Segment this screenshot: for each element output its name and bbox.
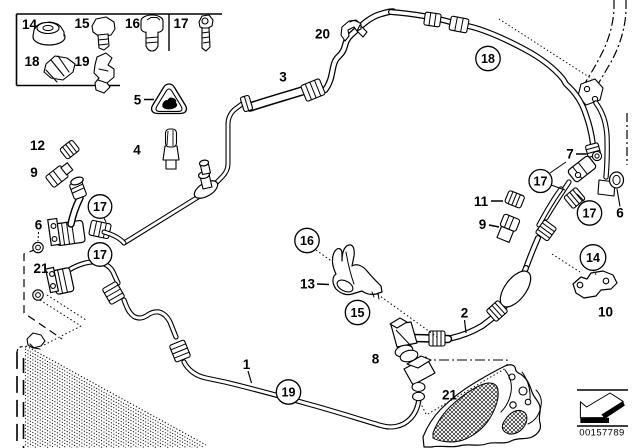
svg-text:4: 4 <box>133 143 141 158</box>
svg-text:6: 6 <box>616 206 624 221</box>
svg-text:8: 8 <box>372 352 380 367</box>
svg-text:2: 2 <box>461 306 469 321</box>
svg-text:17: 17 <box>534 175 548 189</box>
svg-text:16: 16 <box>300 234 314 248</box>
svg-text:17: 17 <box>93 248 107 262</box>
svg-text:11: 11 <box>474 194 489 209</box>
svg-text:13: 13 <box>300 277 316 292</box>
svg-text:20: 20 <box>315 27 330 42</box>
svg-text:17: 17 <box>93 200 107 214</box>
svg-text:7: 7 <box>566 147 574 162</box>
svg-text:00157789: 00157789 <box>579 428 624 439</box>
svg-text:17: 17 <box>173 16 188 31</box>
svg-text:21: 21 <box>442 388 458 403</box>
svg-text:12: 12 <box>30 138 45 153</box>
svg-text:14: 14 <box>586 251 600 265</box>
svg-text:15: 15 <box>74 16 90 31</box>
svg-text:16: 16 <box>125 16 141 31</box>
svg-text:6: 6 <box>35 218 43 233</box>
svg-text:3: 3 <box>279 70 287 85</box>
svg-text:9: 9 <box>479 217 487 232</box>
svg-text:10: 10 <box>598 305 613 320</box>
svg-text:15: 15 <box>351 306 365 320</box>
svg-text:14: 14 <box>22 17 38 32</box>
svg-text:9: 9 <box>30 165 38 180</box>
svg-text:21: 21 <box>33 261 49 276</box>
svg-text:18: 18 <box>24 54 40 69</box>
svg-text:5: 5 <box>134 93 142 108</box>
svg-text:18: 18 <box>481 52 495 66</box>
svg-text:19: 19 <box>282 386 296 400</box>
svg-text:19: 19 <box>74 54 89 69</box>
svg-text:17: 17 <box>583 207 597 221</box>
svg-text:1: 1 <box>243 357 251 372</box>
